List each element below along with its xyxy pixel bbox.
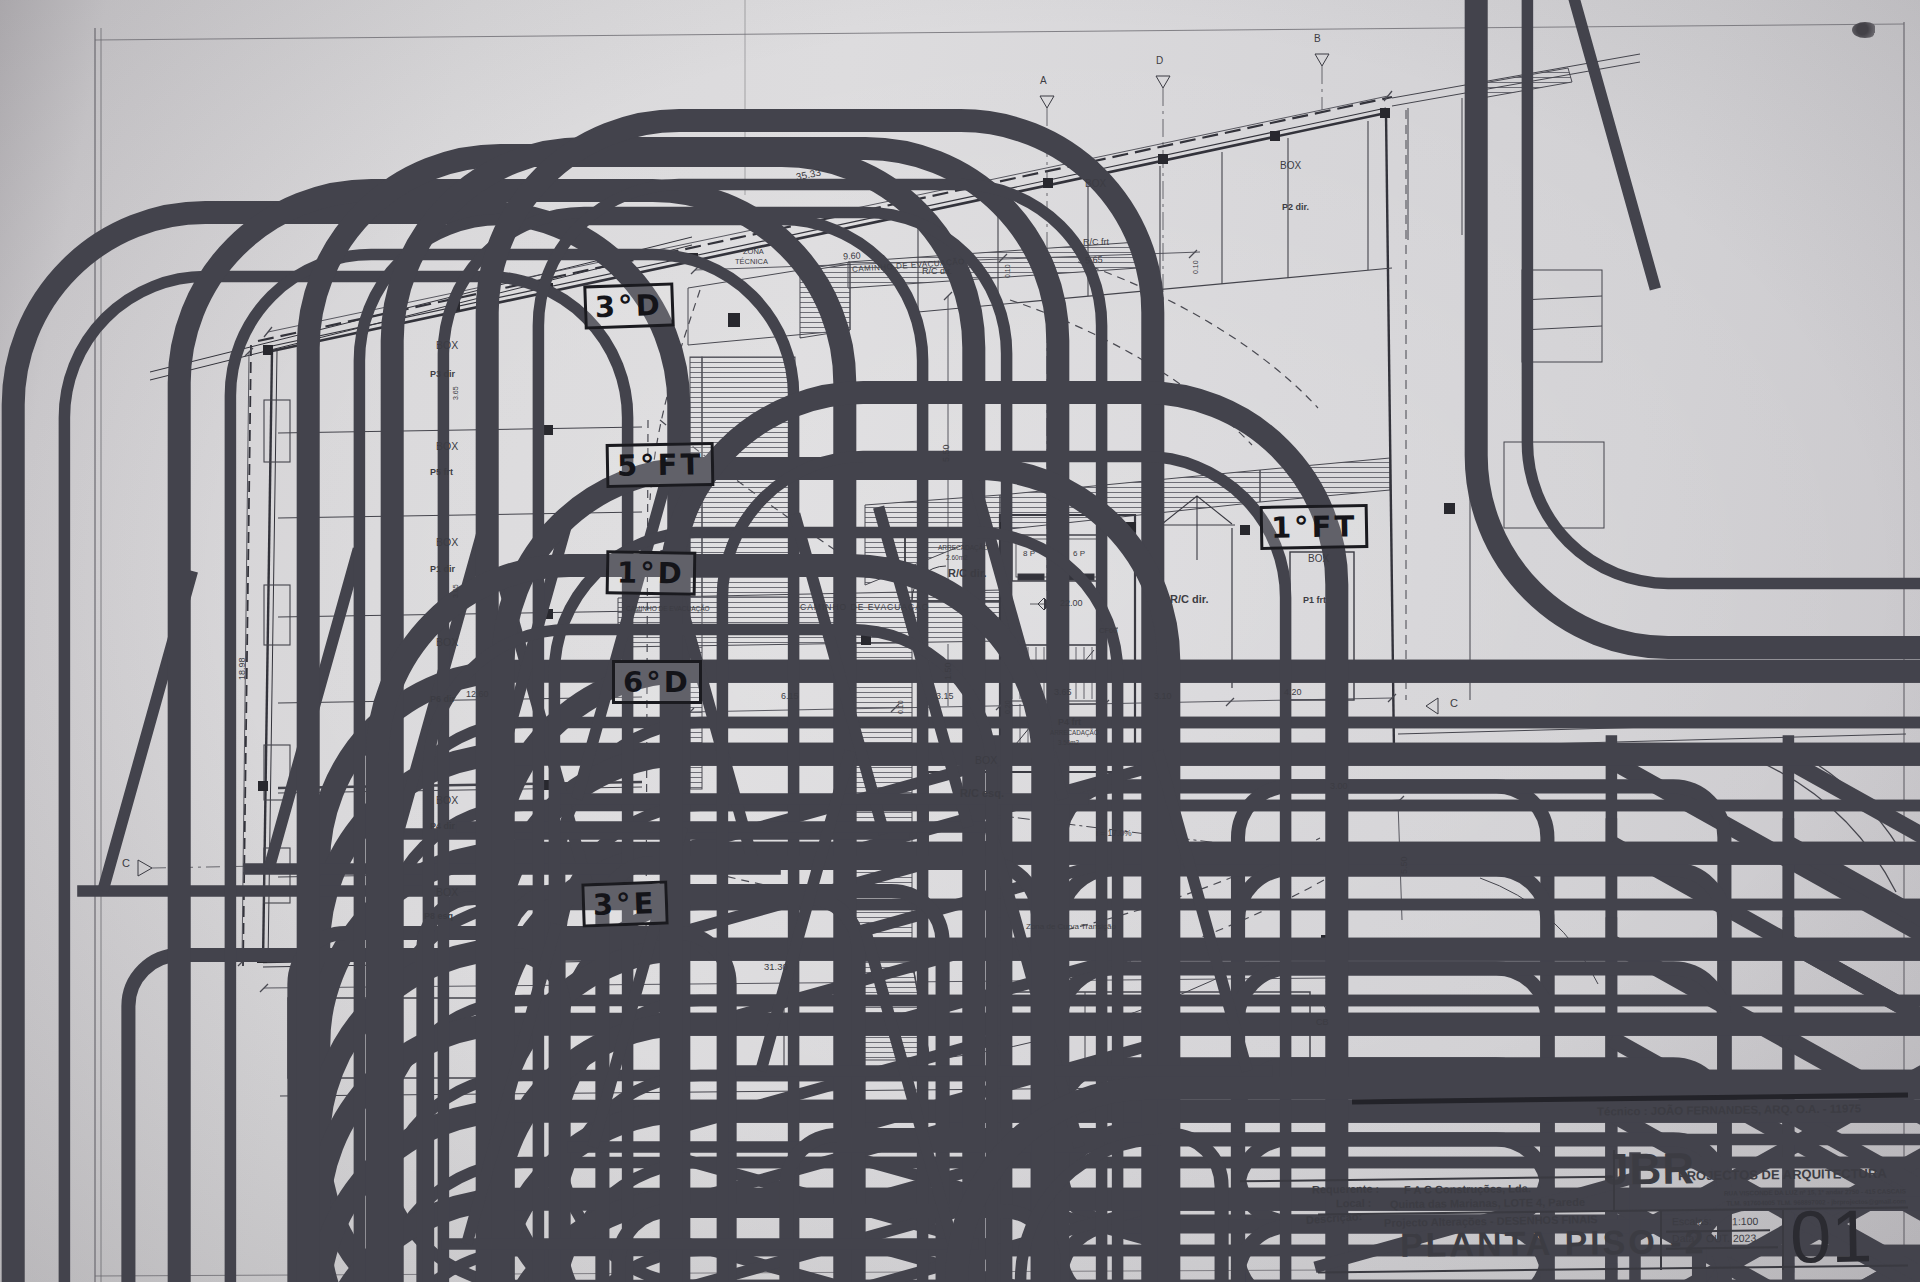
dim-0-10: 0.10 <box>897 700 904 714</box>
caminho-evacuacao-mid: CAMINHO DE EVACUAÇÃO <box>800 603 929 612</box>
stall-dim: 3.65 <box>452 386 459 400</box>
section-c-left: C <box>122 858 130 870</box>
lift-right-label: 6 P <box>1073 550 1085 558</box>
sheet-number: 01 <box>1789 1197 1873 1276</box>
stall-dim: 3.05 <box>452 584 459 598</box>
rc-dir-stall-label: R/C dir. <box>1170 594 1209 606</box>
firm-name: PROJECTOS DE ARQUITECTURA <box>1678 1167 1887 1183</box>
handwritten-3d: 3°D <box>583 282 674 329</box>
cars <box>13 0 1920 1282</box>
paper-corner-mark <box>1852 22 1878 38</box>
box-label: BOX <box>436 887 458 898</box>
section-b: B <box>1314 34 1321 45</box>
stall-id: P1 dir <box>430 565 455 574</box>
zona-line1: ZONA <box>743 247 764 256</box>
box-label: BOX <box>1085 179 1106 190</box>
dim-3-65: 3.65 <box>1054 688 1072 697</box>
stall-rc-frt: R/C frt <box>1083 238 1109 247</box>
dim-5-65: 5.65 <box>1085 256 1103 266</box>
dim-0-10: 0.10 <box>1004 264 1011 278</box>
lift-left-label: 8 P <box>1023 550 1035 558</box>
p4-area: 3.50m2 <box>1058 740 1079 747</box>
section-c-right: C <box>1450 698 1458 710</box>
level-value: 22.00 <box>1060 599 1083 608</box>
handwritten-1d: 1°D <box>606 550 697 596</box>
local-label: Local : <box>1336 1198 1372 1210</box>
section-cb: CB <box>1316 1018 1329 1027</box>
escala-label: Escalas: <box>1672 1216 1712 1227</box>
arrecadacao-label: ARRECADAÇÃO <box>938 545 988 552</box>
zona-tecnica-label: ZONA <box>743 248 764 256</box>
stall-id: P8 esq <box>424 912 453 921</box>
handwritten-5ft: 5°FT <box>606 442 715 488</box>
dim-3-10: 3.10 <box>1154 692 1172 701</box>
dim-5-50-right: 5.50 <box>1400 856 1409 874</box>
box-label: BOX <box>436 637 458 648</box>
dim-4-20: 4.20 <box>1284 688 1302 697</box>
rc-dir-room: R/C dir. <box>948 568 987 580</box>
slope-label: i = 17.0% <box>1096 829 1132 838</box>
p1-frt-label: P1 frt <box>1303 596 1326 605</box>
box-label: BOX <box>436 795 458 806</box>
data-value: OUT. 2023 <box>1706 1233 1756 1245</box>
dim-0-20: 0.20 <box>1004 700 1011 714</box>
curve-note: Zona de Curva Transição <box>1026 923 1116 931</box>
dim-9-60: 9.60 <box>843 252 861 262</box>
box-label: BOX <box>436 537 458 548</box>
tb-vert-1 <box>1613 1150 1615 1210</box>
box-label: BOX <box>975 755 997 766</box>
rc-esq-label: R/C esq. <box>960 788 1004 800</box>
local-value: Quinta das Marianas, LOTE 4, Parede <box>1390 1197 1585 1211</box>
dim-5-50-center: 5.50 <box>942 444 951 462</box>
zona-line2: TÉCNICA <box>735 257 768 266</box>
handwritten-3e: 3°E <box>581 881 668 928</box>
stall-p2-dir: P2 dir. <box>1282 203 1309 212</box>
dim-31-30: 31.30 <box>764 962 788 972</box>
handwritten-1ft: 1°FT <box>1260 504 1369 550</box>
plan-linework <box>0 0 1920 1282</box>
box-label: BOX <box>1308 554 1329 565</box>
arrecadacao-area: 2.60m2 <box>946 555 968 562</box>
zona-tecnica-label2: TÉCNICA <box>735 258 768 266</box>
handwritten-6d: 6°D <box>612 660 702 704</box>
section-d: D <box>1156 56 1163 67</box>
requerente-label: Requerente : <box>1312 1184 1379 1196</box>
stall-id: P4 dir <box>430 822 455 831</box>
cf60-label: CF60 <box>1099 627 1117 635</box>
dim-12-60: 12.60 <box>466 690 489 699</box>
stall-id: P3 dir <box>430 370 455 379</box>
requerente-value: F A C Construções, Lda. <box>1404 1183 1531 1196</box>
dim-18-98: 18.98 <box>238 657 247 680</box>
tb-vert-2 <box>1660 1210 1662 1270</box>
caminho-evacuacao-left: CAMINHO DE EVACUAÇÃO <box>626 606 710 613</box>
box-label: BOX <box>436 340 458 351</box>
p4-frt-label: P4 frt <box>1058 718 1081 727</box>
photographed-floor-plan-sheet: ZONA TÉCNICA CAMINHO DE EVACUAÇÃO CAMINH… <box>0 0 1920 1282</box>
data-label: Data: <box>1672 1233 1697 1244</box>
escala-value: 1:100 <box>1732 1216 1758 1227</box>
section-a: A <box>1040 76 1047 87</box>
dim-3-15: 3.15 <box>936 692 954 701</box>
arrecadacao-label2: ARRECADAÇÃO <box>1050 730 1099 737</box>
dim-1-50: 1.50 <box>944 662 953 680</box>
stall-id: P5 frt <box>430 468 453 477</box>
tb-vert-3 <box>1782 1210 1784 1270</box>
stall-id: P6 dir <box>430 695 455 704</box>
box-label: BOX <box>1280 161 1301 172</box>
dim-3-00: 3.00 <box>1330 782 1348 791</box>
box-label: BOX <box>436 441 458 452</box>
dim-0-10: 0.10 <box>1192 260 1199 274</box>
dim-6-15: 6.15 <box>781 692 799 701</box>
stall-rc-dir-top: R/C dir. <box>922 267 952 276</box>
